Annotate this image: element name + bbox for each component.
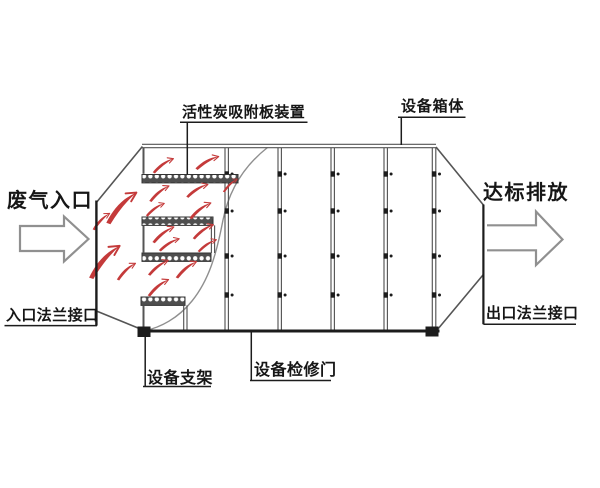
inlet-flow-arrow-icon bbox=[20, 217, 89, 262]
diagram-canvas: 活性炭吸附板装置 设备箱体 废气入口 达标排放 入口法兰接口 出口法兰接口 设备… bbox=[0, 0, 600, 488]
label-outlet-flange: 出口法兰接口 bbox=[486, 305, 578, 322]
base-and-feet bbox=[138, 327, 440, 338]
label-equipment-support: 设备支架 bbox=[147, 369, 213, 387]
label-access-door: 设备检修门 bbox=[254, 361, 337, 379]
label-carbon-plate-device: 活性炭吸附板装置 bbox=[182, 104, 305, 121]
label-compliant-discharge: 达标排放 bbox=[483, 181, 569, 204]
panel-fastener-dots bbox=[225, 171, 442, 297]
leader-lines bbox=[5, 117, 577, 386]
carbon-adsorption-plates bbox=[141, 175, 238, 331]
partition-panels bbox=[225, 148, 387, 331]
outlet-flow-arrow-icon bbox=[487, 212, 563, 266]
diagram-linework bbox=[0, 0, 600, 488]
label-waste-gas-inlet: 废气入口 bbox=[7, 189, 93, 212]
label-inlet-flange: 入口法兰接口 bbox=[6, 307, 98, 324]
label-equipment-box: 设备箱体 bbox=[401, 98, 464, 115]
